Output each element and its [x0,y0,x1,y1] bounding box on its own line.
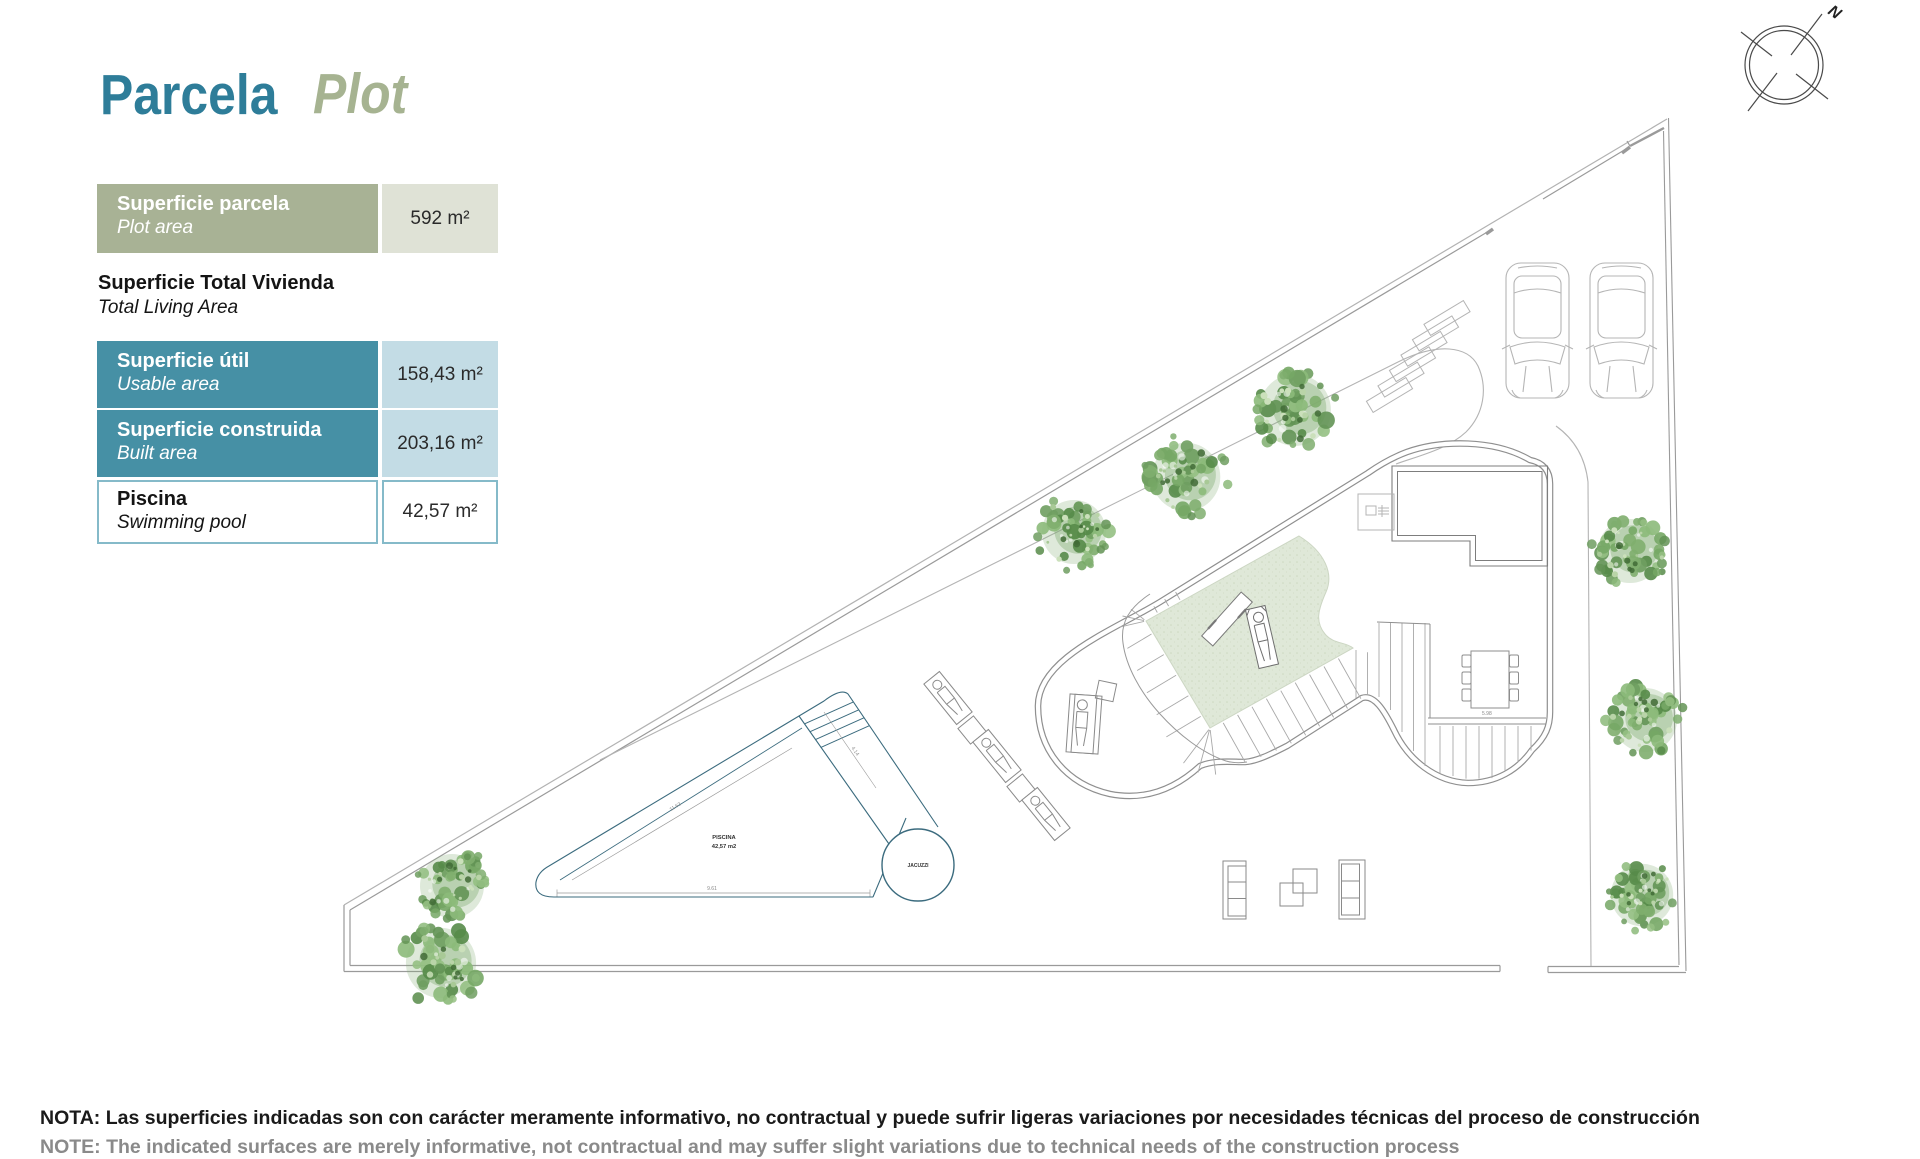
svg-text:N: N [1825,2,1845,23]
svg-text:9.61: 9.61 [707,886,717,892]
svg-text:5.98: 5.98 [1482,711,1492,717]
svg-text:11.63: 11.63 [669,801,683,813]
svg-text:PISCINA: PISCINA [712,835,736,841]
svg-text:JACUZZI: JACUZZI [907,863,929,869]
svg-text:42,57 m2: 42,57 m2 [712,844,737,850]
